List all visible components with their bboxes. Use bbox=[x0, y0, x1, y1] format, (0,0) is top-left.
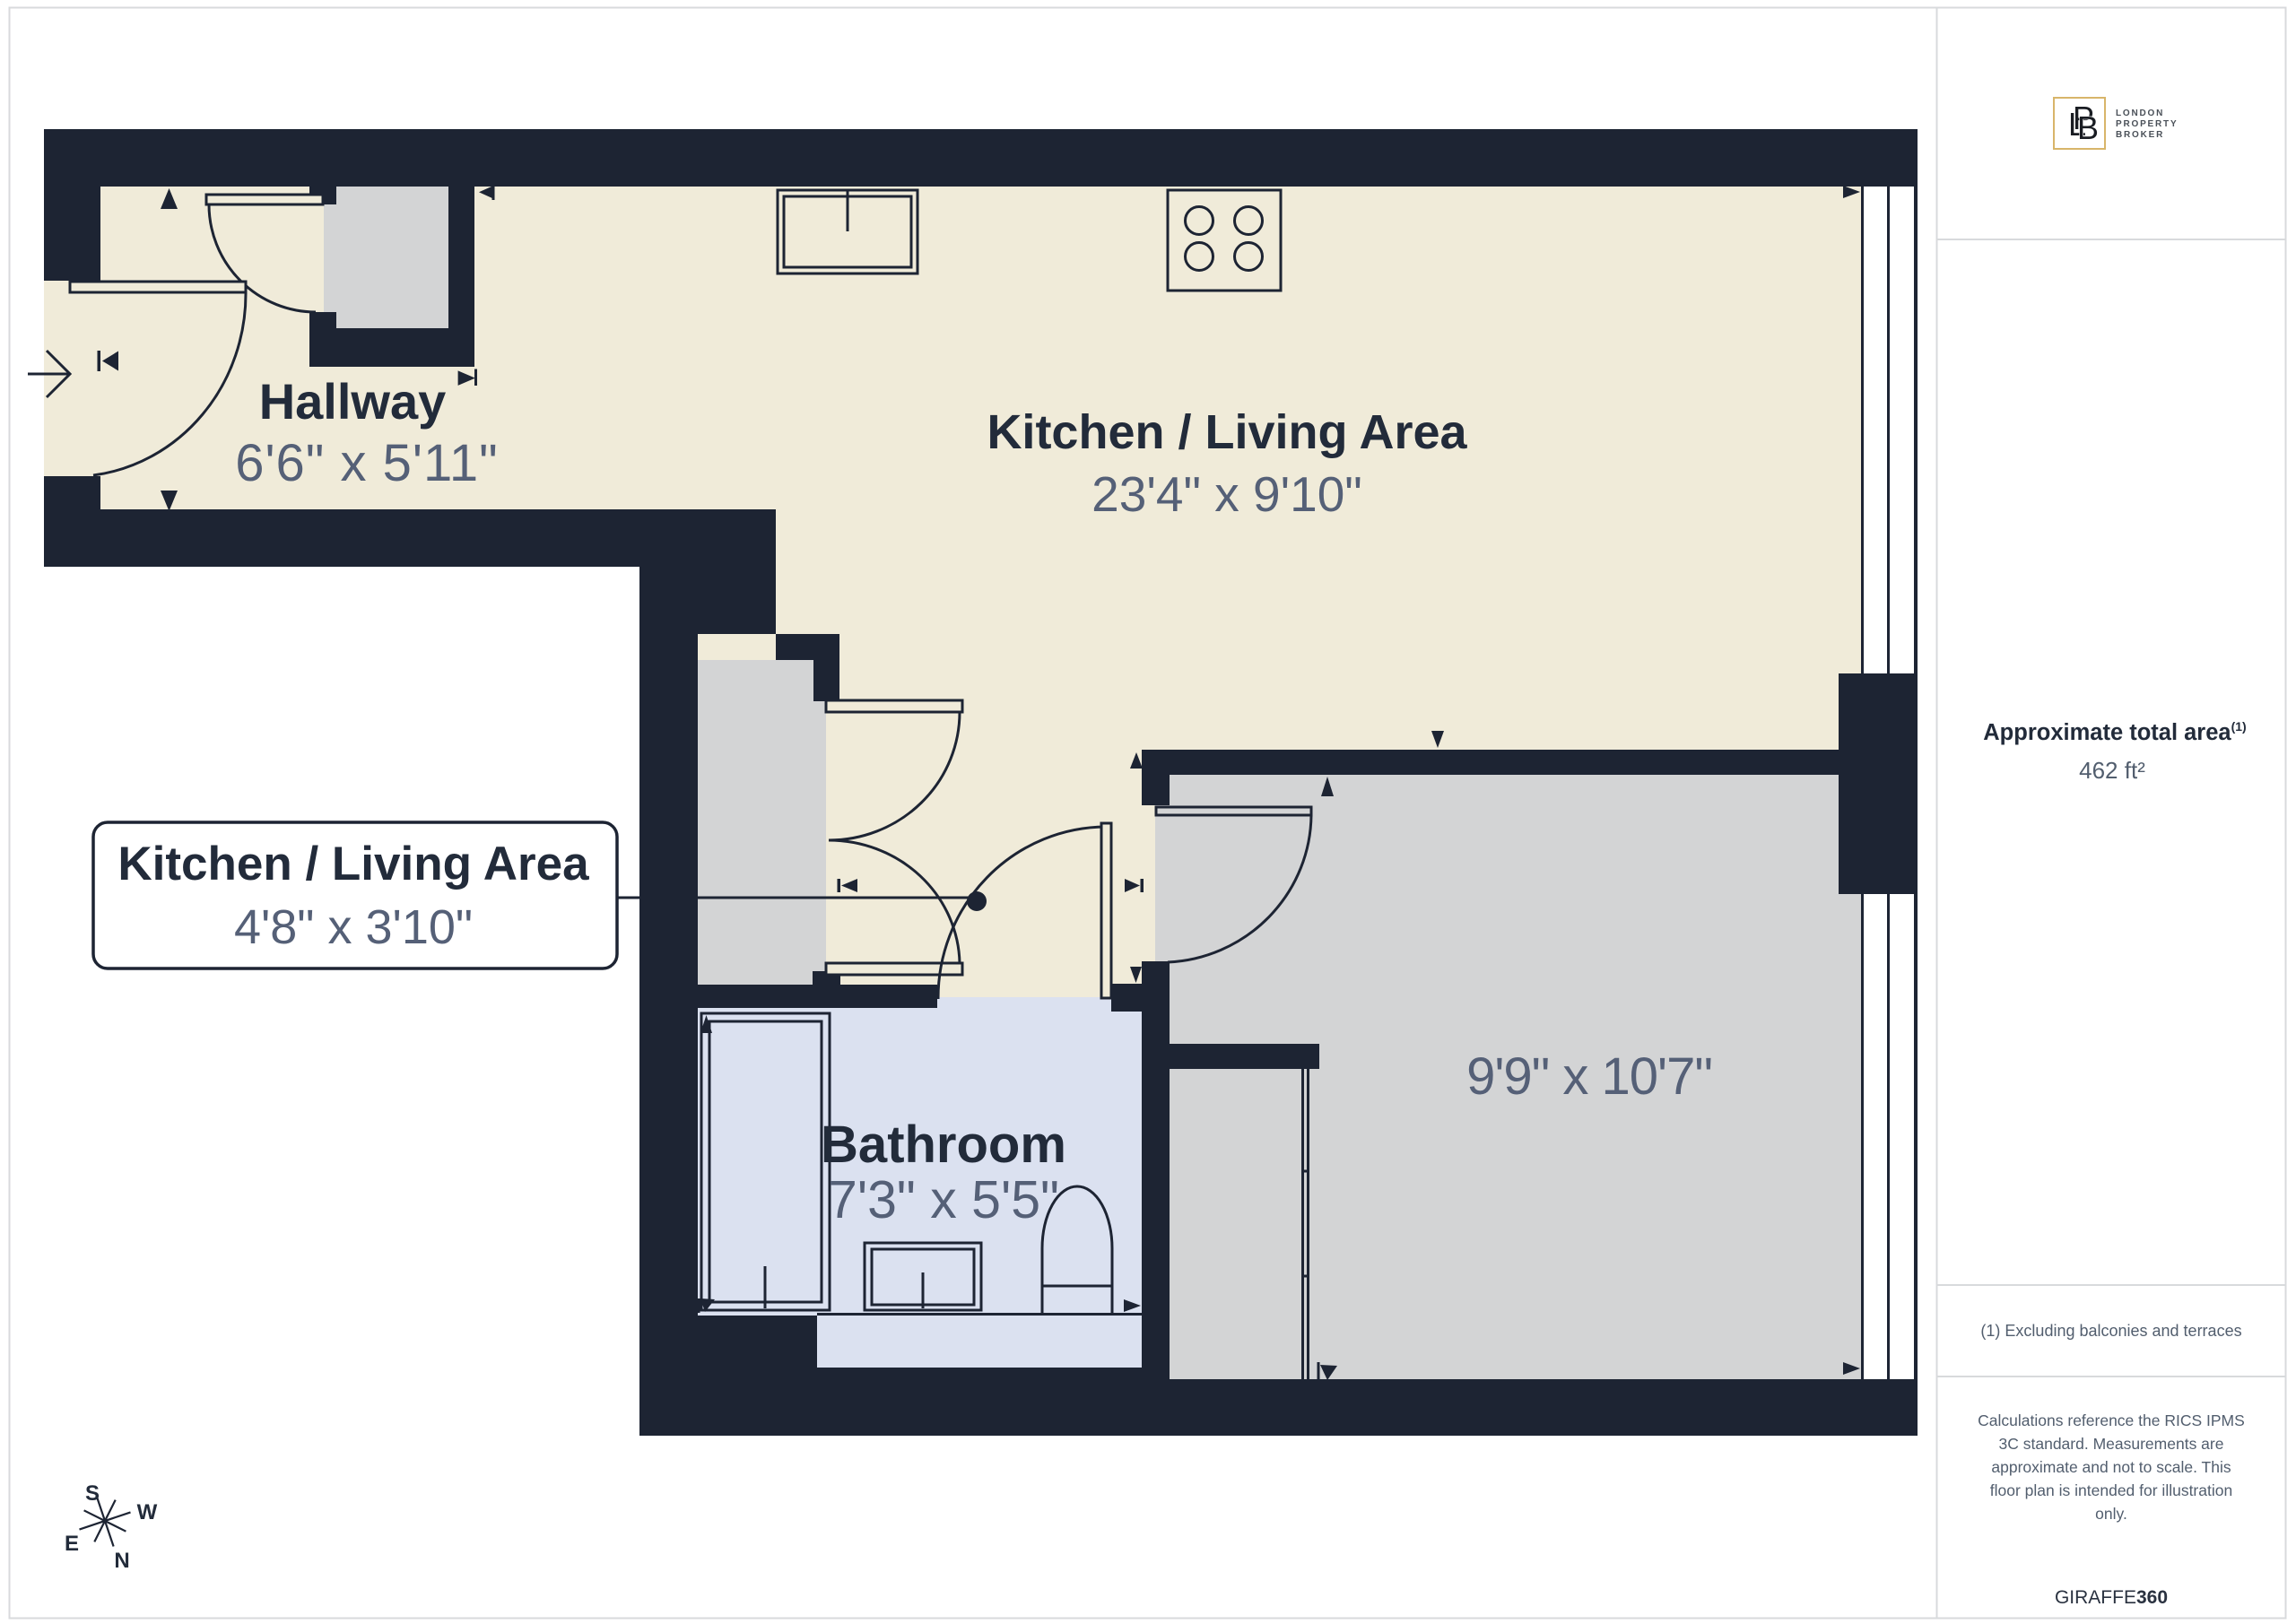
svg-text:462 ft²: 462 ft² bbox=[2079, 757, 2145, 784]
svg-text:Calculations reference the RIC: Calculations reference the RICS IPMS bbox=[1978, 1411, 2245, 1429]
svg-text:PROPERTY: PROPERTY bbox=[2116, 119, 2178, 129]
svg-text:7'3" x 5'5": 7'3" x 5'5" bbox=[828, 1170, 1059, 1229]
svg-text:23'4" x 9'10": 23'4" x 9'10" bbox=[1091, 466, 1362, 522]
svg-text:floor plan is intended for ill: floor plan is intended for illustration bbox=[1990, 1481, 2232, 1499]
svg-text:Bathroom: Bathroom bbox=[821, 1116, 1066, 1174]
svg-text:3C standard. Measurements are: 3C standard. Measurements are bbox=[1999, 1435, 2224, 1453]
svg-text:LONDON: LONDON bbox=[2116, 109, 2164, 118]
svg-text:Approximate total area(1): Approximate total area(1) bbox=[1983, 719, 2246, 745]
svg-text:BROKER: BROKER bbox=[2116, 130, 2164, 140]
svg-text:N: N bbox=[114, 1549, 129, 1573]
svg-text:only.: only. bbox=[2095, 1505, 2127, 1523]
svg-text:S: S bbox=[85, 1481, 100, 1506]
svg-text:9'9" x 10'7": 9'9" x 10'7" bbox=[1466, 1047, 1712, 1106]
svg-text:E: E bbox=[65, 1532, 79, 1556]
svg-text:B: B bbox=[2077, 109, 2099, 146]
svg-text:W: W bbox=[137, 1500, 158, 1524]
svg-text:GIRAFFE360: GIRAFFE360 bbox=[2055, 1587, 2168, 1608]
svg-text:4'8" x 3'10": 4'8" x 3'10" bbox=[234, 900, 473, 954]
svg-text:Hallway: Hallway bbox=[259, 373, 447, 430]
svg-text:Kitchen / Living Area: Kitchen / Living Area bbox=[117, 838, 589, 890]
svg-text:approximate and not to scale.: approximate and not to scale. This bbox=[1991, 1458, 2231, 1476]
svg-text:6'6" x 5'11": 6'6" x 5'11" bbox=[235, 434, 499, 492]
svg-text:(1) Excluding balconies and te: (1) Excluding balconies and terraces bbox=[1980, 1322, 2241, 1340]
svg-text:Kitchen / Living Area: Kitchen / Living Area bbox=[987, 405, 1467, 459]
